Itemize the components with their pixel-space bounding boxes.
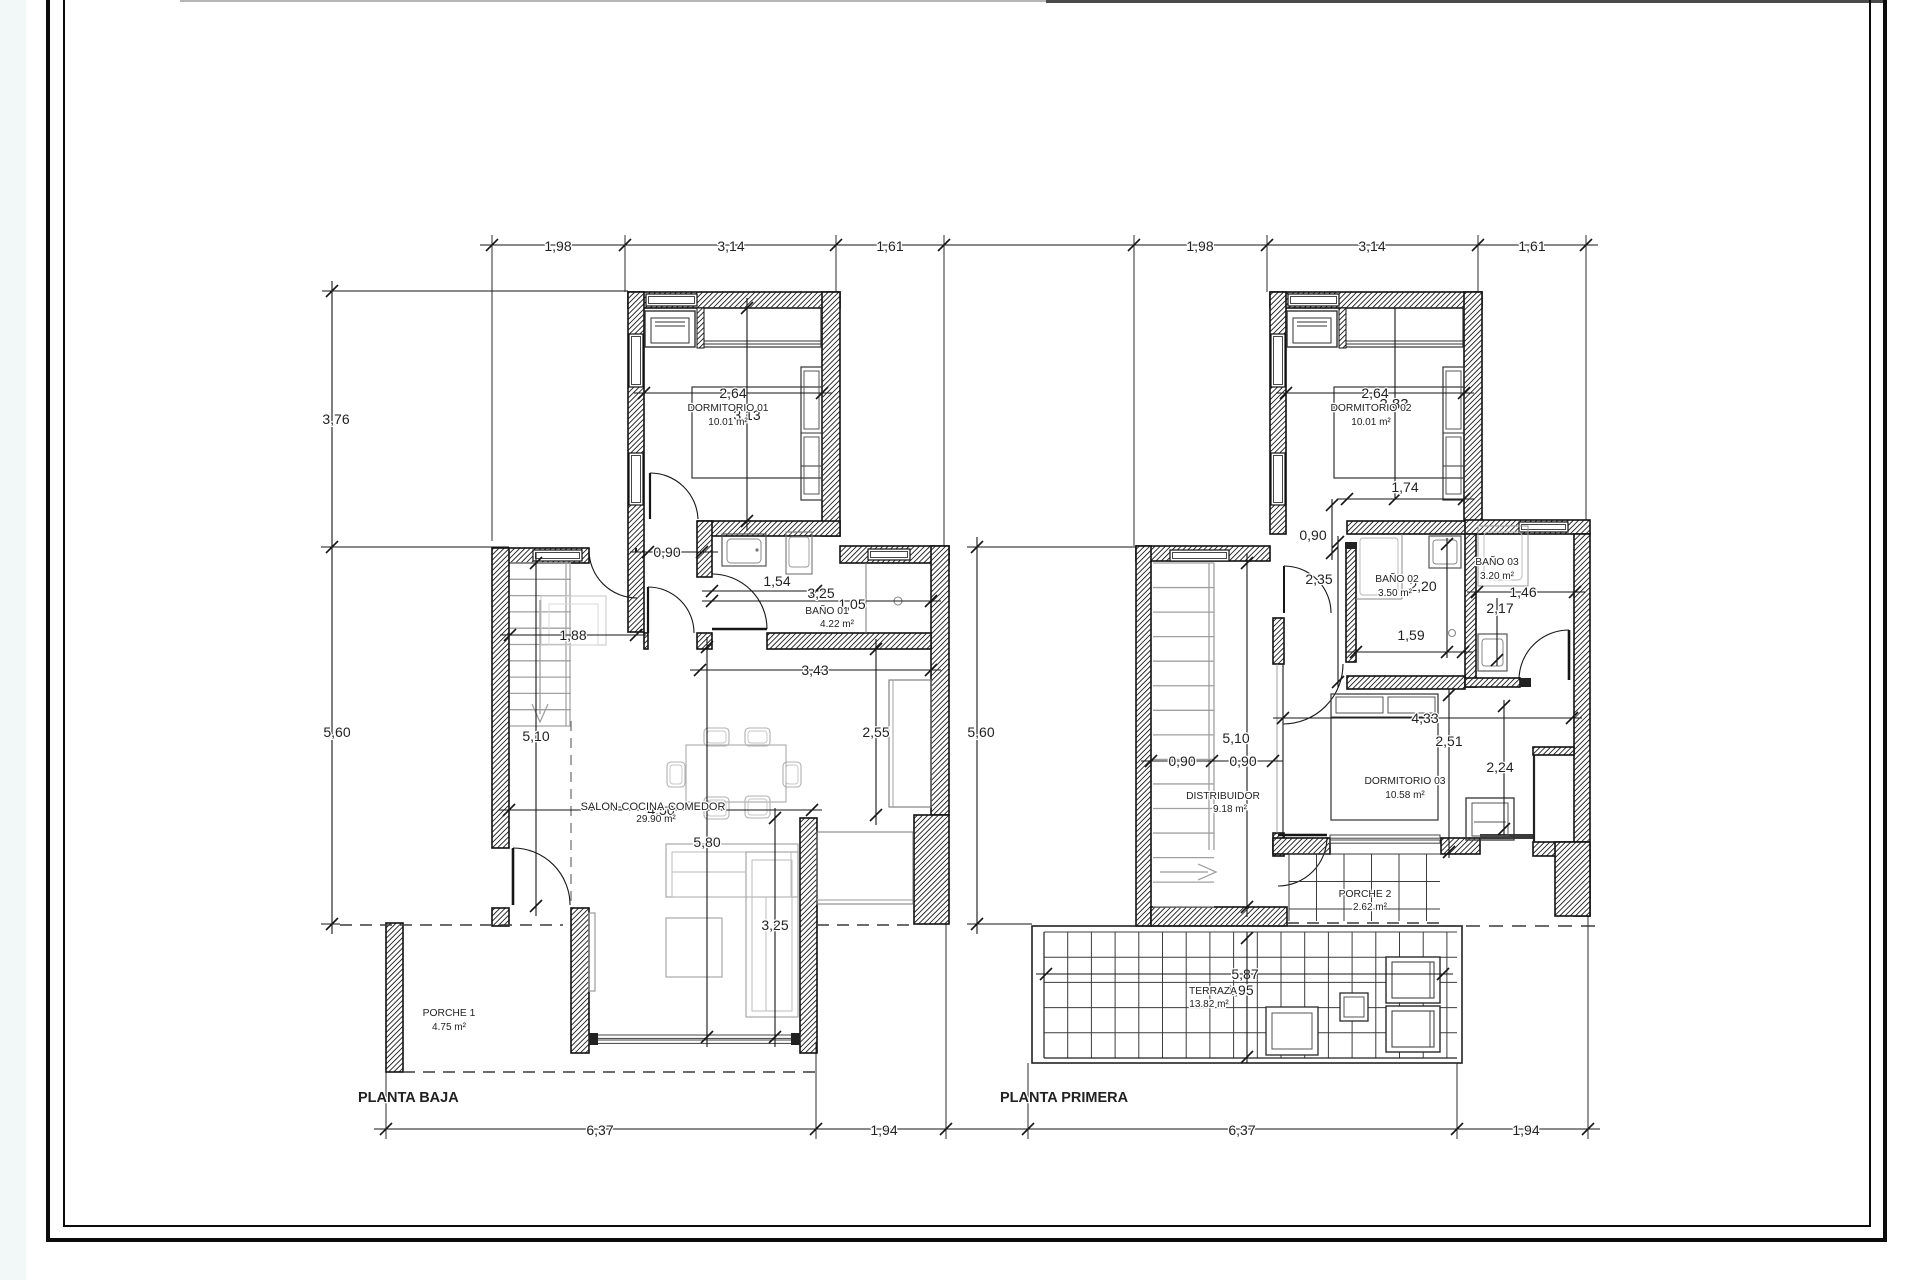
svg-text:29.90 m²: 29.90 m² <box>636 814 676 825</box>
svg-text:0,90: 0,90 <box>1299 527 1326 543</box>
svg-text:PORCHE 2: PORCHE 2 <box>1339 889 1392 900</box>
svg-text:BAÑO 01: BAÑO 01 <box>805 604 849 617</box>
svg-text:1,88: 1,88 <box>559 627 586 643</box>
svg-text:3,76: 3,76 <box>322 411 349 427</box>
svg-text:1,59: 1,59 <box>1397 627 1424 643</box>
svg-text:2,55: 2,55 <box>862 724 889 740</box>
svg-text:BAÑO 02: BAÑO 02 <box>1375 572 1419 585</box>
svg-text:1,61: 1,61 <box>1518 238 1545 254</box>
svg-text:6,37: 6,37 <box>1228 1122 1255 1138</box>
svg-text:13.82 m²: 13.82 m² <box>1189 999 1229 1010</box>
svg-text:1,94: 1,94 <box>870 1122 897 1138</box>
svg-text:2,35: 2,35 <box>1305 571 1332 587</box>
svg-text:PORCHE 1: PORCHE 1 <box>423 1008 476 1019</box>
svg-text:1,54: 1,54 <box>763 573 790 589</box>
svg-text:5,10: 5,10 <box>522 728 549 744</box>
svg-text:10.01 m²: 10.01 m² <box>708 417 748 428</box>
svg-text:DORMITORIO 01: DORMITORIO 01 <box>687 403 768 414</box>
svg-text:5,80: 5,80 <box>693 834 720 850</box>
svg-text:5,87: 5,87 <box>1231 966 1258 982</box>
svg-text:4.22 m²: 4.22 m² <box>820 619 855 630</box>
svg-text:1,74: 1,74 <box>1391 479 1418 495</box>
svg-text:1,61: 1,61 <box>876 238 903 254</box>
svg-text:4.75 m²: 4.75 m² <box>432 1022 467 1033</box>
svg-text:3.50 m²: 3.50 m² <box>1378 588 1413 599</box>
svg-text:6,37: 6,37 <box>586 1122 613 1138</box>
svg-text:1,98: 1,98 <box>544 238 571 254</box>
svg-text:10.58 m²: 10.58 m² <box>1385 790 1425 801</box>
svg-text:0,90: 0,90 <box>653 544 680 560</box>
svg-text:3,25: 3,25 <box>807 585 834 601</box>
svg-text:PLANTA PRIMERA: PLANTA PRIMERA <box>1000 1090 1129 1106</box>
svg-text:9.18 m²: 9.18 m² <box>1213 804 1248 815</box>
svg-text:DORMITORIO 02: DORMITORIO 02 <box>1330 403 1411 414</box>
svg-text:0,90: 0,90 <box>1168 753 1195 769</box>
svg-text:2,64: 2,64 <box>719 385 746 401</box>
svg-text:TERRAZA: TERRAZA <box>1189 986 1237 997</box>
svg-text:5,60: 5,60 <box>967 724 994 740</box>
svg-text:DISTRIBUIDOR: DISTRIBUIDOR <box>1186 791 1260 802</box>
svg-text:3,14: 3,14 <box>717 238 744 254</box>
svg-text:SALON-COCINA-COMEDOR: SALON-COCINA-COMEDOR <box>581 801 726 813</box>
svg-text:DORMITORIO 03: DORMITORIO 03 <box>1364 776 1445 787</box>
svg-text:1,94: 1,94 <box>1512 1122 1539 1138</box>
svg-text:3,43: 3,43 <box>801 662 828 678</box>
svg-text:3,14: 3,14 <box>1358 238 1385 254</box>
svg-text:BAÑO 03: BAÑO 03 <box>1475 555 1519 568</box>
svg-text:2,51: 2,51 <box>1435 733 1462 749</box>
svg-text:1,98: 1,98 <box>1186 238 1213 254</box>
svg-text:4,33: 4,33 <box>1411 710 1438 726</box>
svg-text:1,46: 1,46 <box>1509 584 1536 600</box>
svg-text:3.20 m²: 3.20 m² <box>1480 571 1515 582</box>
svg-text:2,17: 2,17 <box>1486 600 1513 616</box>
svg-text:PLANTA BAJA: PLANTA BAJA <box>358 1090 459 1106</box>
svg-text:5,10: 5,10 <box>1222 730 1249 746</box>
svg-text:0,90: 0,90 <box>1229 753 1256 769</box>
svg-text:3,25: 3,25 <box>761 917 788 933</box>
svg-text:2,24: 2,24 <box>1486 759 1513 775</box>
svg-text:5,60: 5,60 <box>323 724 350 740</box>
svg-text:10.01 m²: 10.01 m² <box>1351 417 1391 428</box>
svg-text:2.62 m²: 2.62 m² <box>1353 902 1388 913</box>
